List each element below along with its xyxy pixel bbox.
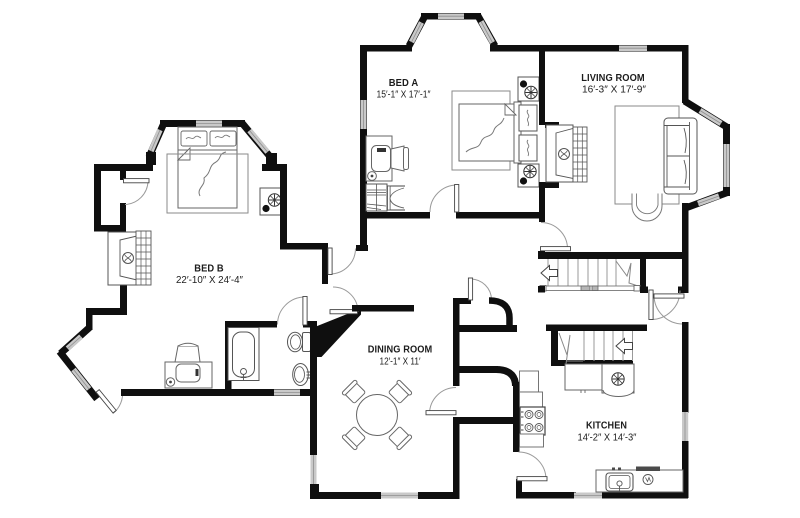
svg-text:14′-2″ X 14′-3″: 14′-2″ X 14′-3″	[578, 433, 637, 444]
svg-text:BED B: BED B	[194, 264, 224, 275]
svg-text:12′-1″ X 11′: 12′-1″ X 11′	[380, 357, 421, 368]
svg-text:16′-3″ X 17′-9″: 16′-3″ X 17′-9″	[582, 85, 647, 96]
svg-text:DINING ROOM: DINING ROOM	[368, 345, 433, 356]
svg-text:22′-10″ X 24′-4″: 22′-10″ X 24′-4″	[176, 275, 243, 286]
svg-text:BED A: BED A	[389, 78, 419, 89]
svg-text:LIVING ROOM: LIVING ROOM	[581, 73, 645, 84]
svg-text:15′-1″ X 17′-1″: 15′-1″ X 17′-1″	[377, 90, 431, 101]
svg-text:KITCHEN: KITCHEN	[586, 421, 627, 432]
